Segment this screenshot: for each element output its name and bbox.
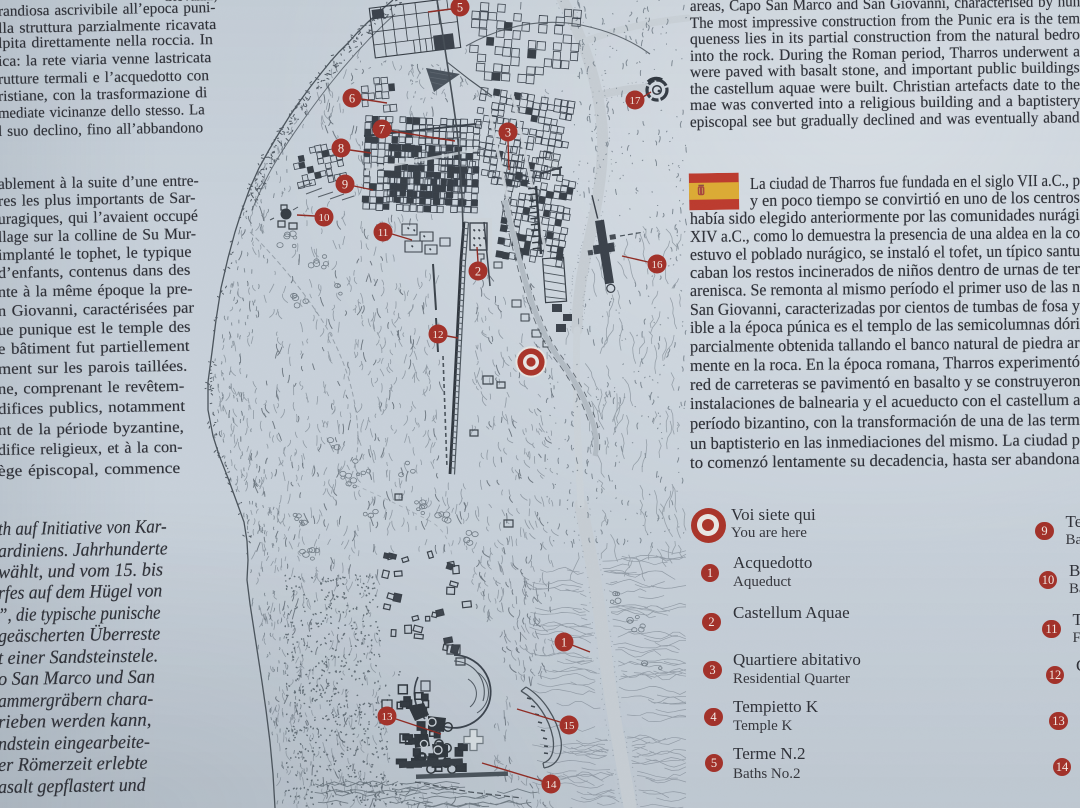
svg-text:7: 7	[379, 123, 385, 137]
svg-text:3: 3	[505, 126, 511, 140]
svg-text:14: 14	[546, 779, 558, 791]
svg-text:10: 10	[319, 212, 331, 224]
svg-text:6: 6	[349, 92, 355, 106]
svg-text:5: 5	[457, 1, 463, 15]
svg-text:12: 12	[433, 329, 444, 341]
svg-text:1: 1	[561, 636, 567, 650]
svg-text:15: 15	[564, 720, 576, 732]
svg-text:13: 13	[382, 711, 394, 723]
svg-text:16: 16	[652, 259, 664, 271]
svg-text:8: 8	[338, 142, 344, 156]
svg-text:2: 2	[475, 265, 481, 279]
svg-text:17: 17	[630, 95, 642, 107]
svg-text:9: 9	[342, 178, 348, 192]
svg-text:11: 11	[378, 227, 389, 239]
